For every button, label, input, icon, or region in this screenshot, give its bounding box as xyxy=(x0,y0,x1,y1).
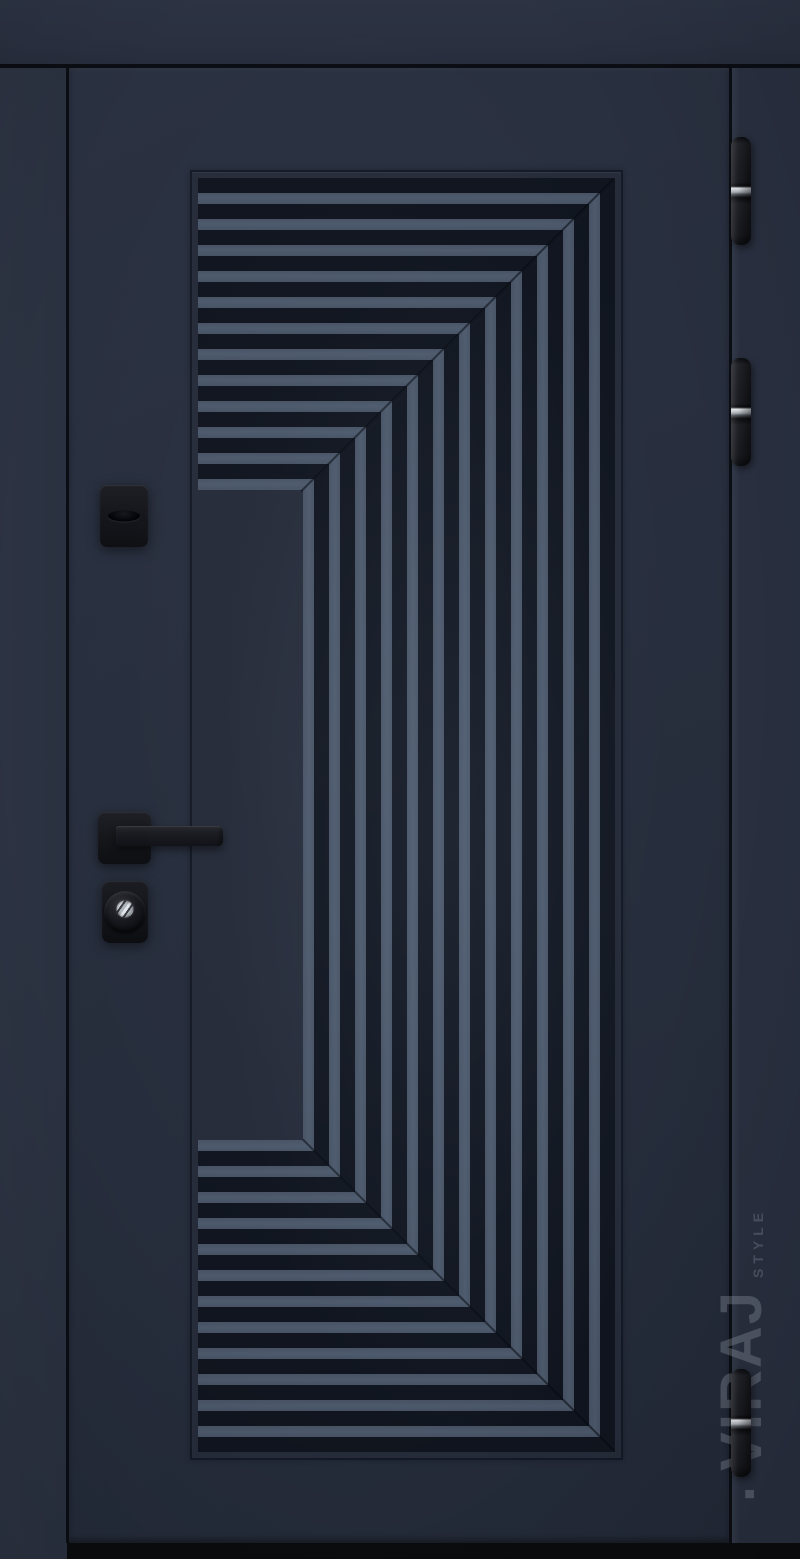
ribbed-pattern xyxy=(198,178,615,1452)
watermark-dot: · xyxy=(733,1483,768,1502)
key-way xyxy=(113,898,137,922)
door-product-photo: · VIRAJ STYLE xyxy=(0,0,800,1559)
lock-cylinder xyxy=(104,891,146,933)
hinge-middle xyxy=(731,358,751,466)
decor-panel xyxy=(190,170,623,1460)
hinge-top xyxy=(731,137,751,245)
key-escutcheon xyxy=(100,485,148,547)
watermark-style-label: STYLE xyxy=(749,1208,769,1278)
threshold-shadow xyxy=(67,1543,800,1559)
transom-top-panel xyxy=(0,0,800,64)
hinge-bottom xyxy=(731,1369,751,1477)
keyhole-slot xyxy=(108,511,140,522)
door-frame-left xyxy=(0,68,66,1559)
door-handle-lever xyxy=(116,826,223,846)
cylinder-escutcheon xyxy=(102,881,148,943)
